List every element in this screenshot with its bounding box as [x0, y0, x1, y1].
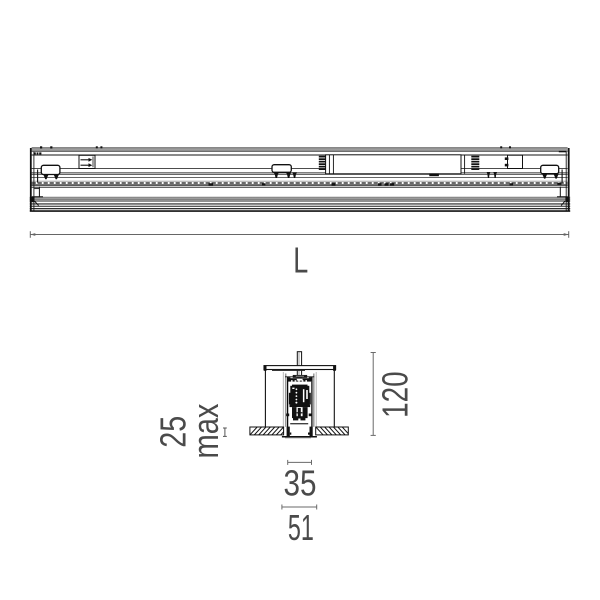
svg-text:max: max — [185, 404, 226, 459]
svg-text:51: 51 — [288, 507, 314, 548]
svg-text:35: 35 — [284, 462, 317, 503]
svg-text:120: 120 — [375, 371, 416, 418]
svg-text:L: L — [293, 240, 308, 281]
